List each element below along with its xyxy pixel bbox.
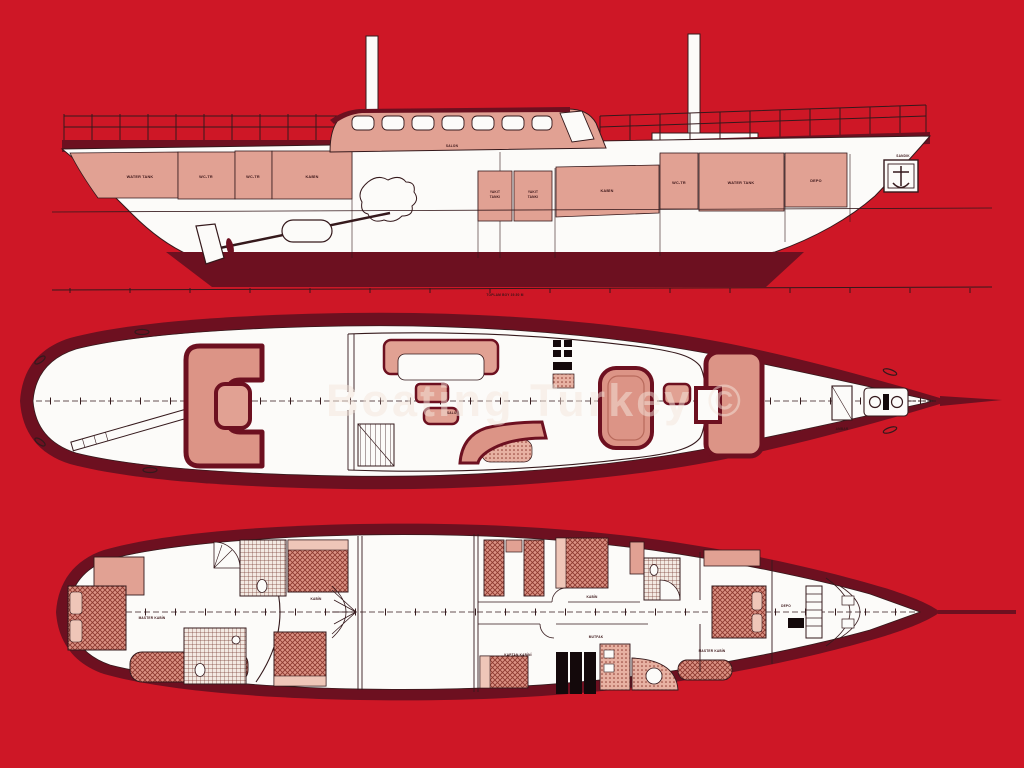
captain-cabin: KAPTAN KABİNİ bbox=[480, 653, 532, 688]
deckhouse-profile: SALON bbox=[330, 107, 606, 152]
profile-view: WATER TANK WC-TR WC-TR KABİN YAKIT TANKI… bbox=[52, 34, 992, 297]
label-master-fwd: MASTER KABİN bbox=[699, 649, 726, 653]
aft-cockpit-settee bbox=[186, 346, 262, 466]
main-deck-view: SALON AMBAR bbox=[20, 313, 1002, 490]
label-baseline-note: TOPLAM BOY 39.50 M bbox=[486, 293, 523, 297]
label-wc-3: WC-TR bbox=[672, 181, 686, 185]
label-fuel-1b: TANKI bbox=[490, 195, 501, 199]
companionway-stairs bbox=[358, 424, 394, 466]
label-cabin-aft: KABİN bbox=[310, 597, 322, 601]
main-deck-bowsprit bbox=[940, 396, 1002, 406]
label-fuel-1a: YAKIT bbox=[490, 190, 500, 194]
watermark-text: Boating Turkey © bbox=[326, 375, 744, 426]
label-captain: KAPTAN KABİNİ bbox=[504, 653, 532, 657]
label-cabin-mid: KABİN bbox=[586, 595, 598, 599]
label-water-tank-fwd: WATER TANK bbox=[728, 181, 755, 185]
label-master-aft: MASTER KABİN bbox=[139, 616, 166, 620]
master-sofa-fwd bbox=[678, 660, 732, 680]
label-store-fwd: DEPO bbox=[810, 179, 822, 183]
twin-bed-1 bbox=[484, 540, 504, 596]
baseline bbox=[52, 287, 992, 290]
gulet-arrangement-drawing: WATER TANK WC-TR WC-TR KABİN YAKIT TANKI… bbox=[0, 0, 1024, 768]
label-chain-locker: SANDIK bbox=[896, 154, 910, 158]
label-cabin-aft: KABİN bbox=[305, 175, 318, 179]
label-store: DEPO bbox=[781, 604, 791, 608]
label-wc-2: WC-TR bbox=[246, 175, 260, 179]
aft-railing bbox=[64, 114, 344, 142]
cockpit-table bbox=[216, 384, 250, 428]
label-hatch: AMBAR bbox=[836, 427, 849, 431]
keel bbox=[166, 252, 804, 287]
label-fuel-2a: YAKIT bbox=[528, 190, 538, 194]
label-wc-1: WC-TR bbox=[199, 175, 213, 179]
label-fuel-2b: TANKI bbox=[528, 195, 539, 199]
anchor-box: SANDIK bbox=[884, 154, 918, 192]
label-water-tank-aft: WATER TANK bbox=[127, 175, 154, 179]
boat-plan-stage: WATER TANK WC-TR WC-TR KABİN YAKIT TANKI… bbox=[0, 0, 1024, 768]
twin-bed-2 bbox=[524, 540, 544, 596]
label-galley: MUTFAK bbox=[589, 635, 604, 639]
salon-galley-counter bbox=[384, 340, 498, 380]
engine-block bbox=[556, 652, 596, 694]
label-salon-profile: SALON bbox=[446, 144, 459, 148]
lower-deck-view: MASTER KABİN KABİN bbox=[56, 524, 1016, 701]
label-cabin-fwd: KABİN bbox=[600, 189, 613, 193]
